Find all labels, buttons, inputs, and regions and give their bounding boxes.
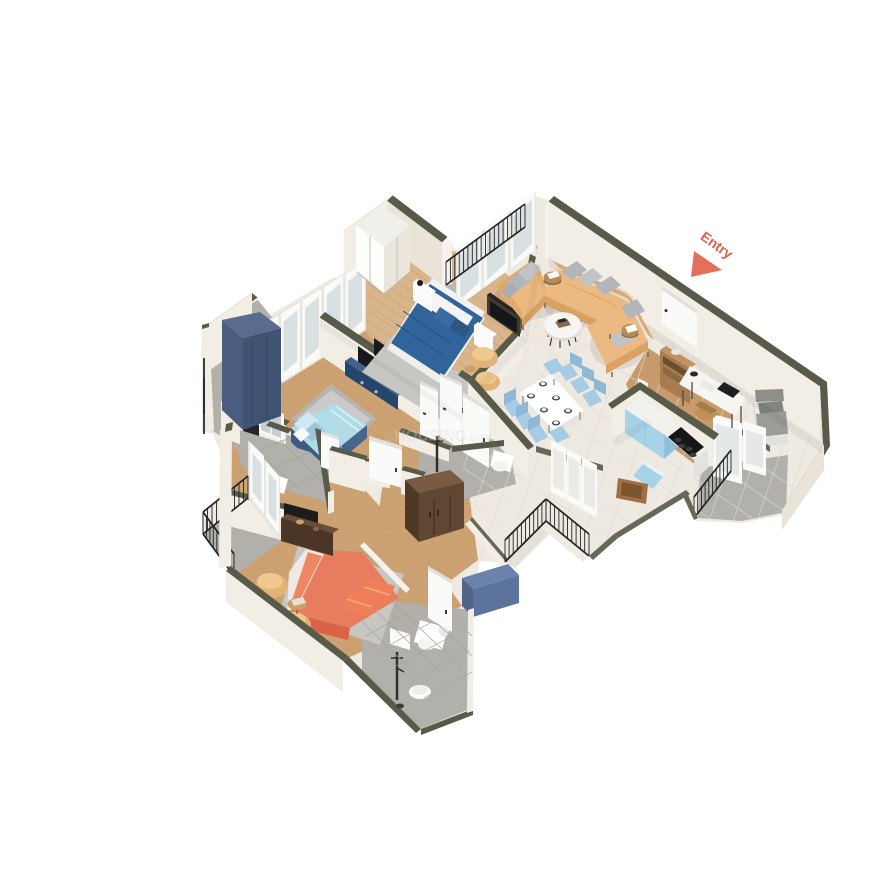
svg-text:Entry: Entry: [698, 228, 737, 262]
